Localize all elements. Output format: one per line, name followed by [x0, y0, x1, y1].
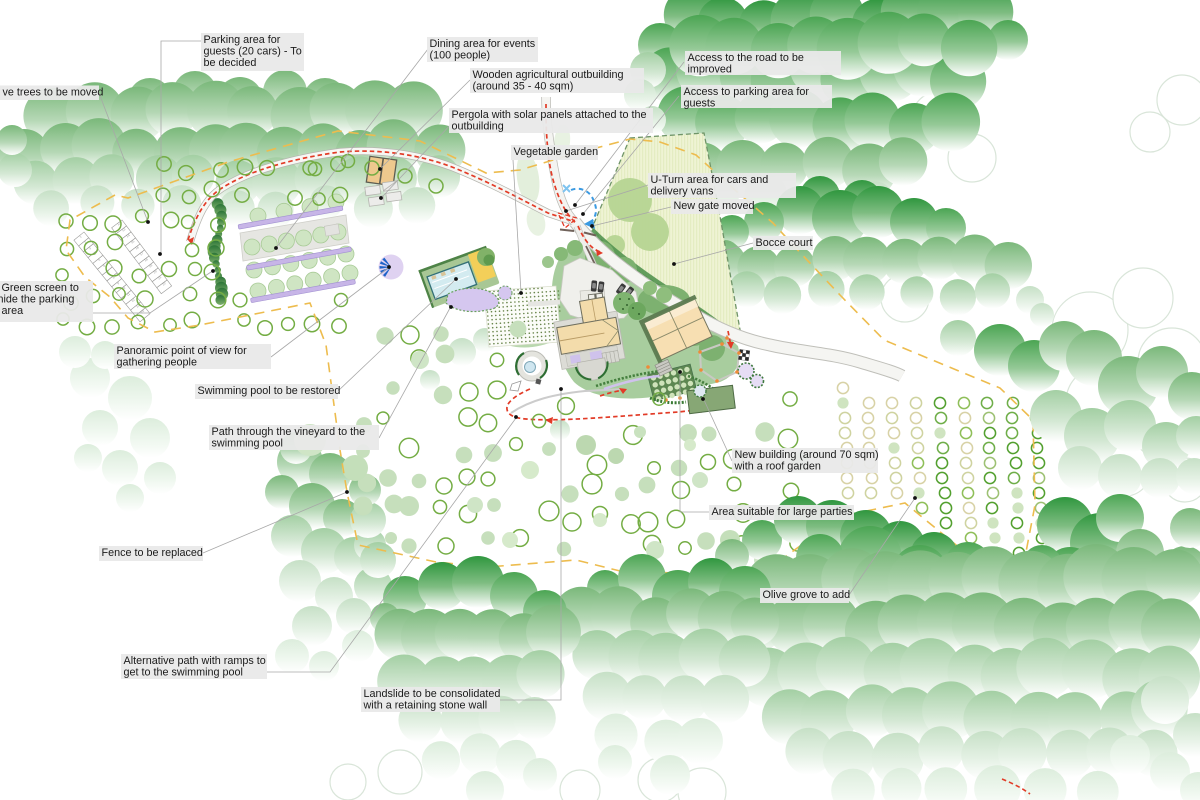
- svg-text:Landslide to be consolidatedwi: Landslide to be consolidatedwith a retai…: [363, 688, 501, 711]
- svg-text:Swimming pool to be restored: Swimming pool to be restored: [198, 385, 341, 397]
- svg-text:Fence to be replaced: Fence to be replaced: [102, 547, 203, 559]
- svg-text:ve trees to be moved: ve trees to be moved: [3, 87, 104, 99]
- svg-text:Bocce court: Bocce court: [756, 237, 813, 249]
- svg-text:New gate moved: New gate moved: [674, 200, 755, 212]
- svg-text:Olive grove to add: Olive grove to add: [763, 589, 851, 601]
- svg-text:Vegetable garden: Vegetable garden: [514, 146, 599, 158]
- svg-text:Area suitable for large partie: Area suitable for large parties: [712, 506, 854, 518]
